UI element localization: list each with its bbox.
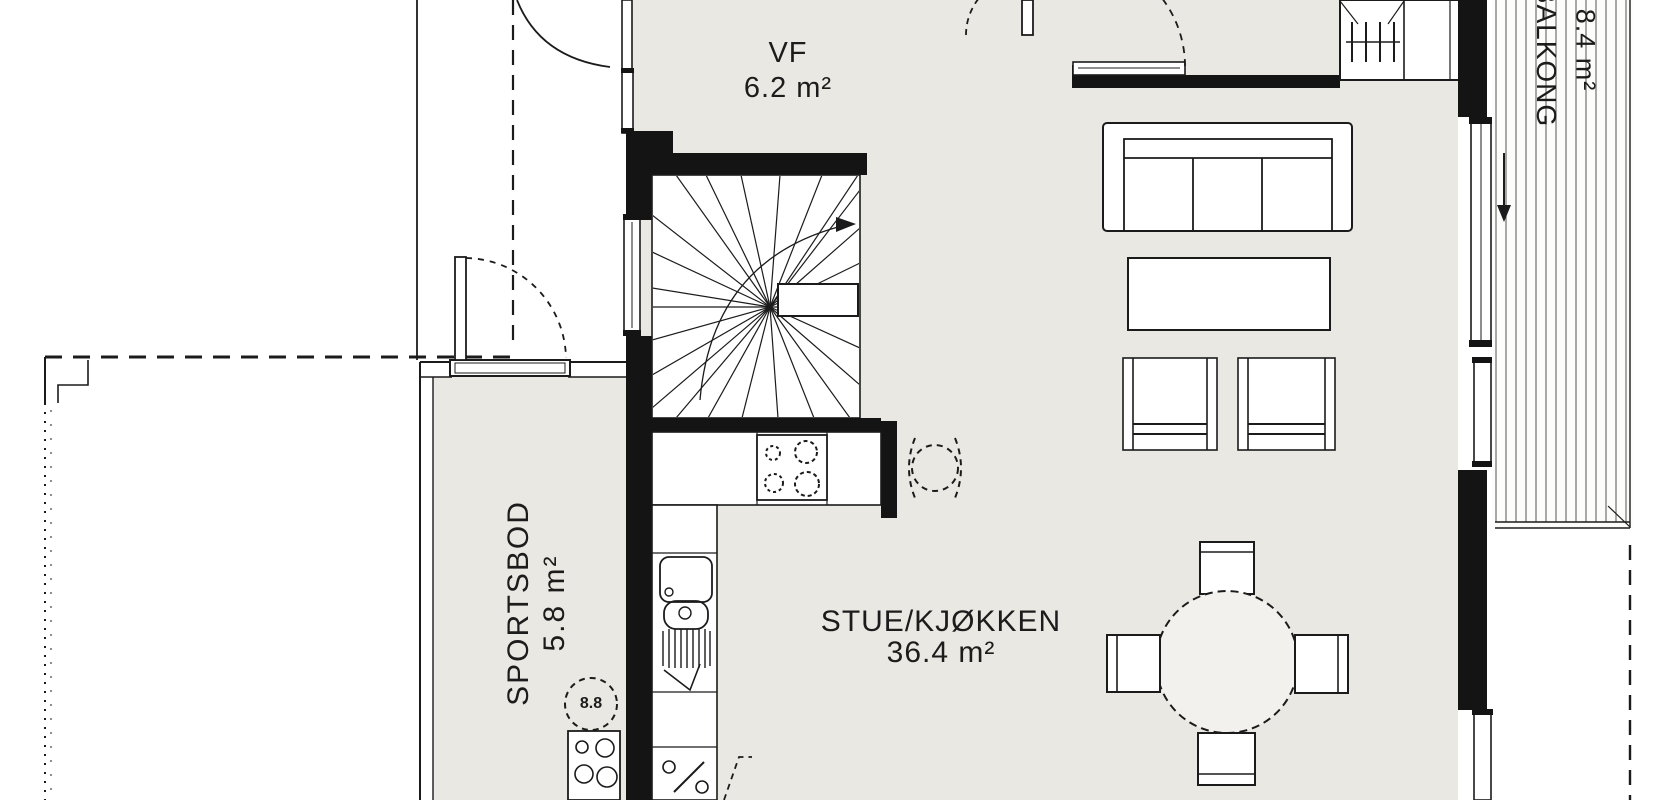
balcony [1492, 0, 1633, 800]
room-name: SPORTSBOD [502, 500, 535, 706]
dining-chair-icon [1295, 635, 1348, 693]
water-heater-label: 8.8 [580, 695, 602, 713]
stair-handrail [778, 284, 858, 316]
room-label-balkong: BALKONG [1530, 0, 1562, 127]
room-name: VF [768, 37, 807, 69]
fireplace-icon [1340, 0, 1460, 80]
room-area-balkong: 8.4 m² [1570, 9, 1601, 92]
armchair-icon [1123, 358, 1217, 450]
room-area: 36.4 m² [821, 637, 1061, 668]
dining-chair-icon [1198, 733, 1255, 785]
room-area: 5.8 m² [537, 500, 573, 706]
floor-plan-drawing [0, 0, 1670, 800]
floor-plan: VF 6.2 m² STUE/KJØKKEN 36.4 m² SPORTSBOD… [0, 0, 1670, 800]
washing-machine-icon [568, 731, 620, 800]
dining-chair-icon [1200, 542, 1254, 594]
stove-icon [757, 435, 827, 500]
armchair-icon [1238, 358, 1335, 450]
room-name: STUE/KJØKKEN [821, 605, 1061, 638]
dining-chair-icon [1107, 635, 1160, 692]
room-area: 6.2 m² [744, 71, 832, 106]
coffee-table-icon [1128, 258, 1330, 330]
room-label-stue-kjokken: STUE/KJØKKEN 36.4 m² [821, 606, 1061, 668]
room-label-sportsbod: SPORTSBOD 5.8 m² [501, 500, 573, 706]
entrance-door [517, 0, 610, 67]
dining-table-icon [1156, 591, 1298, 733]
right-exterior-wall [1458, 0, 1493, 800]
room-label-vf: VF 6.2 m² [744, 36, 832, 106]
sofa-icon [1103, 123, 1352, 231]
